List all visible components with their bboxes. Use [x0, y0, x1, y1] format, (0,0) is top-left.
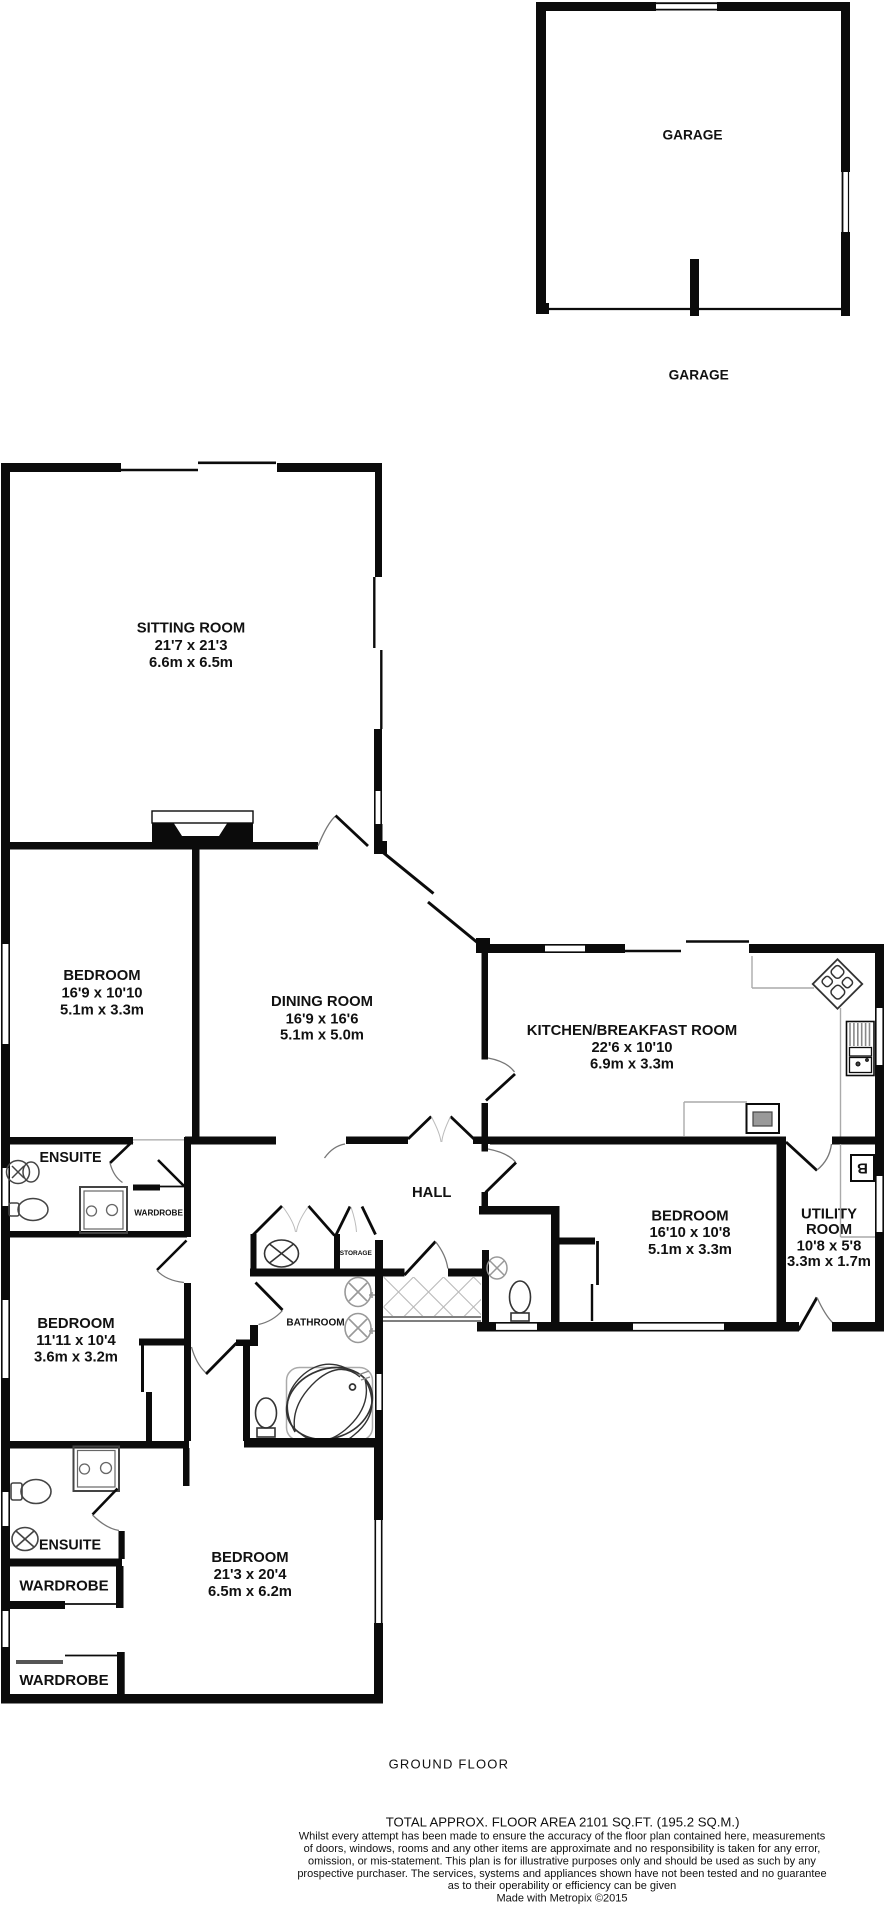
svg-text:UTILITY: UTILITY: [801, 1207, 857, 1223]
svg-text:STORAGE: STORAGE: [340, 1250, 373, 1257]
svg-text:5.1m x 3.3m: 5.1m x 3.3m: [60, 1003, 144, 1019]
svg-text:WARDROBE: WARDROBE: [19, 1578, 108, 1595]
svg-text:10'8 x 5'8: 10'8 x 5'8: [797, 1239, 862, 1255]
svg-text:HALL: HALL: [412, 1185, 451, 1201]
svg-text:BEDROOM: BEDROOM: [651, 1209, 728, 1225]
svg-text:6.5m x 6.2m: 6.5m x 6.2m: [208, 1584, 292, 1600]
svg-text:DINING ROOM: DINING ROOM: [271, 994, 373, 1010]
svg-text:6.6m x 6.5m: 6.6m x 6.5m: [149, 655, 233, 671]
svg-text:SITTING ROOM: SITTING ROOM: [137, 621, 246, 637]
svg-text:prospective purchaser. The ser: prospective purchaser. The services, sys…: [297, 1868, 826, 1880]
svg-text:16'10 x 10'8: 16'10 x 10'8: [649, 1225, 730, 1241]
svg-text:21'3 x 20'4: 21'3 x 20'4: [214, 1567, 288, 1583]
svg-text:omission, or mis-statement. Th: omission, or mis-statement. This plan is…: [308, 1855, 816, 1867]
svg-text:ROOM: ROOM: [806, 1222, 852, 1238]
svg-text:11'11 x 10'4: 11'11 x 10'4: [36, 1333, 116, 1349]
svg-text:16'9 x 16'6: 16'9 x 16'6: [286, 1012, 359, 1028]
svg-text:B: B: [857, 1160, 868, 1177]
svg-text:3.6m x 3.2m: 3.6m x 3.2m: [34, 1350, 118, 1366]
svg-text:ENSUITE: ENSUITE: [40, 1150, 102, 1166]
svg-text:GARAGE: GARAGE: [662, 128, 722, 143]
svg-text:16'9 x 10'10: 16'9 x 10'10: [61, 986, 142, 1002]
svg-text:5.1m x 3.3m: 5.1m x 3.3m: [648, 1242, 732, 1258]
svg-text:Whilst every attempt has been: Whilst every attempt has been made to en…: [299, 1831, 826, 1843]
svg-text:BATHROOM: BATHROOM: [286, 1318, 344, 1329]
svg-text:GROUND FLOOR: GROUND FLOOR: [389, 1757, 510, 1772]
svg-text:Made with Metropix ©2015: Made with Metropix ©2015: [496, 1893, 627, 1905]
svg-text:KITCHEN/BREAKFAST ROOM: KITCHEN/BREAKFAST ROOM: [527, 1023, 737, 1039]
svg-text:as to their operability or eff: as to their operability or efficiency ca…: [448, 1880, 676, 1892]
svg-text:WARDROBE: WARDROBE: [134, 1208, 183, 1217]
svg-text:ENSUITE: ENSUITE: [39, 1538, 101, 1554]
svg-text:GARAGE: GARAGE: [669, 368, 729, 383]
svg-text:of doors, windows, rooms and a: of doors, windows, rooms and any other i…: [304, 1843, 821, 1855]
svg-text:3.3m x 1.7m: 3.3m x 1.7m: [787, 1254, 871, 1270]
svg-text:6.9m x 3.3m: 6.9m x 3.3m: [590, 1057, 674, 1073]
svg-text:BEDROOM: BEDROOM: [63, 968, 140, 984]
svg-text:BEDROOM: BEDROOM: [37, 1316, 114, 1332]
svg-text:WARDROBE: WARDROBE: [19, 1672, 108, 1689]
svg-text:21'7 x 21'3: 21'7 x 21'3: [155, 638, 228, 654]
svg-text:TOTAL APPROX. FLOOR AREA 2101: TOTAL APPROX. FLOOR AREA 2101 SQ.FT. (19…: [386, 1815, 740, 1830]
svg-text:5.1m x 5.0m: 5.1m x 5.0m: [280, 1028, 364, 1044]
svg-text:BEDROOM: BEDROOM: [211, 1550, 288, 1566]
svg-text:22'6 x 10'10: 22'6 x 10'10: [591, 1040, 672, 1056]
